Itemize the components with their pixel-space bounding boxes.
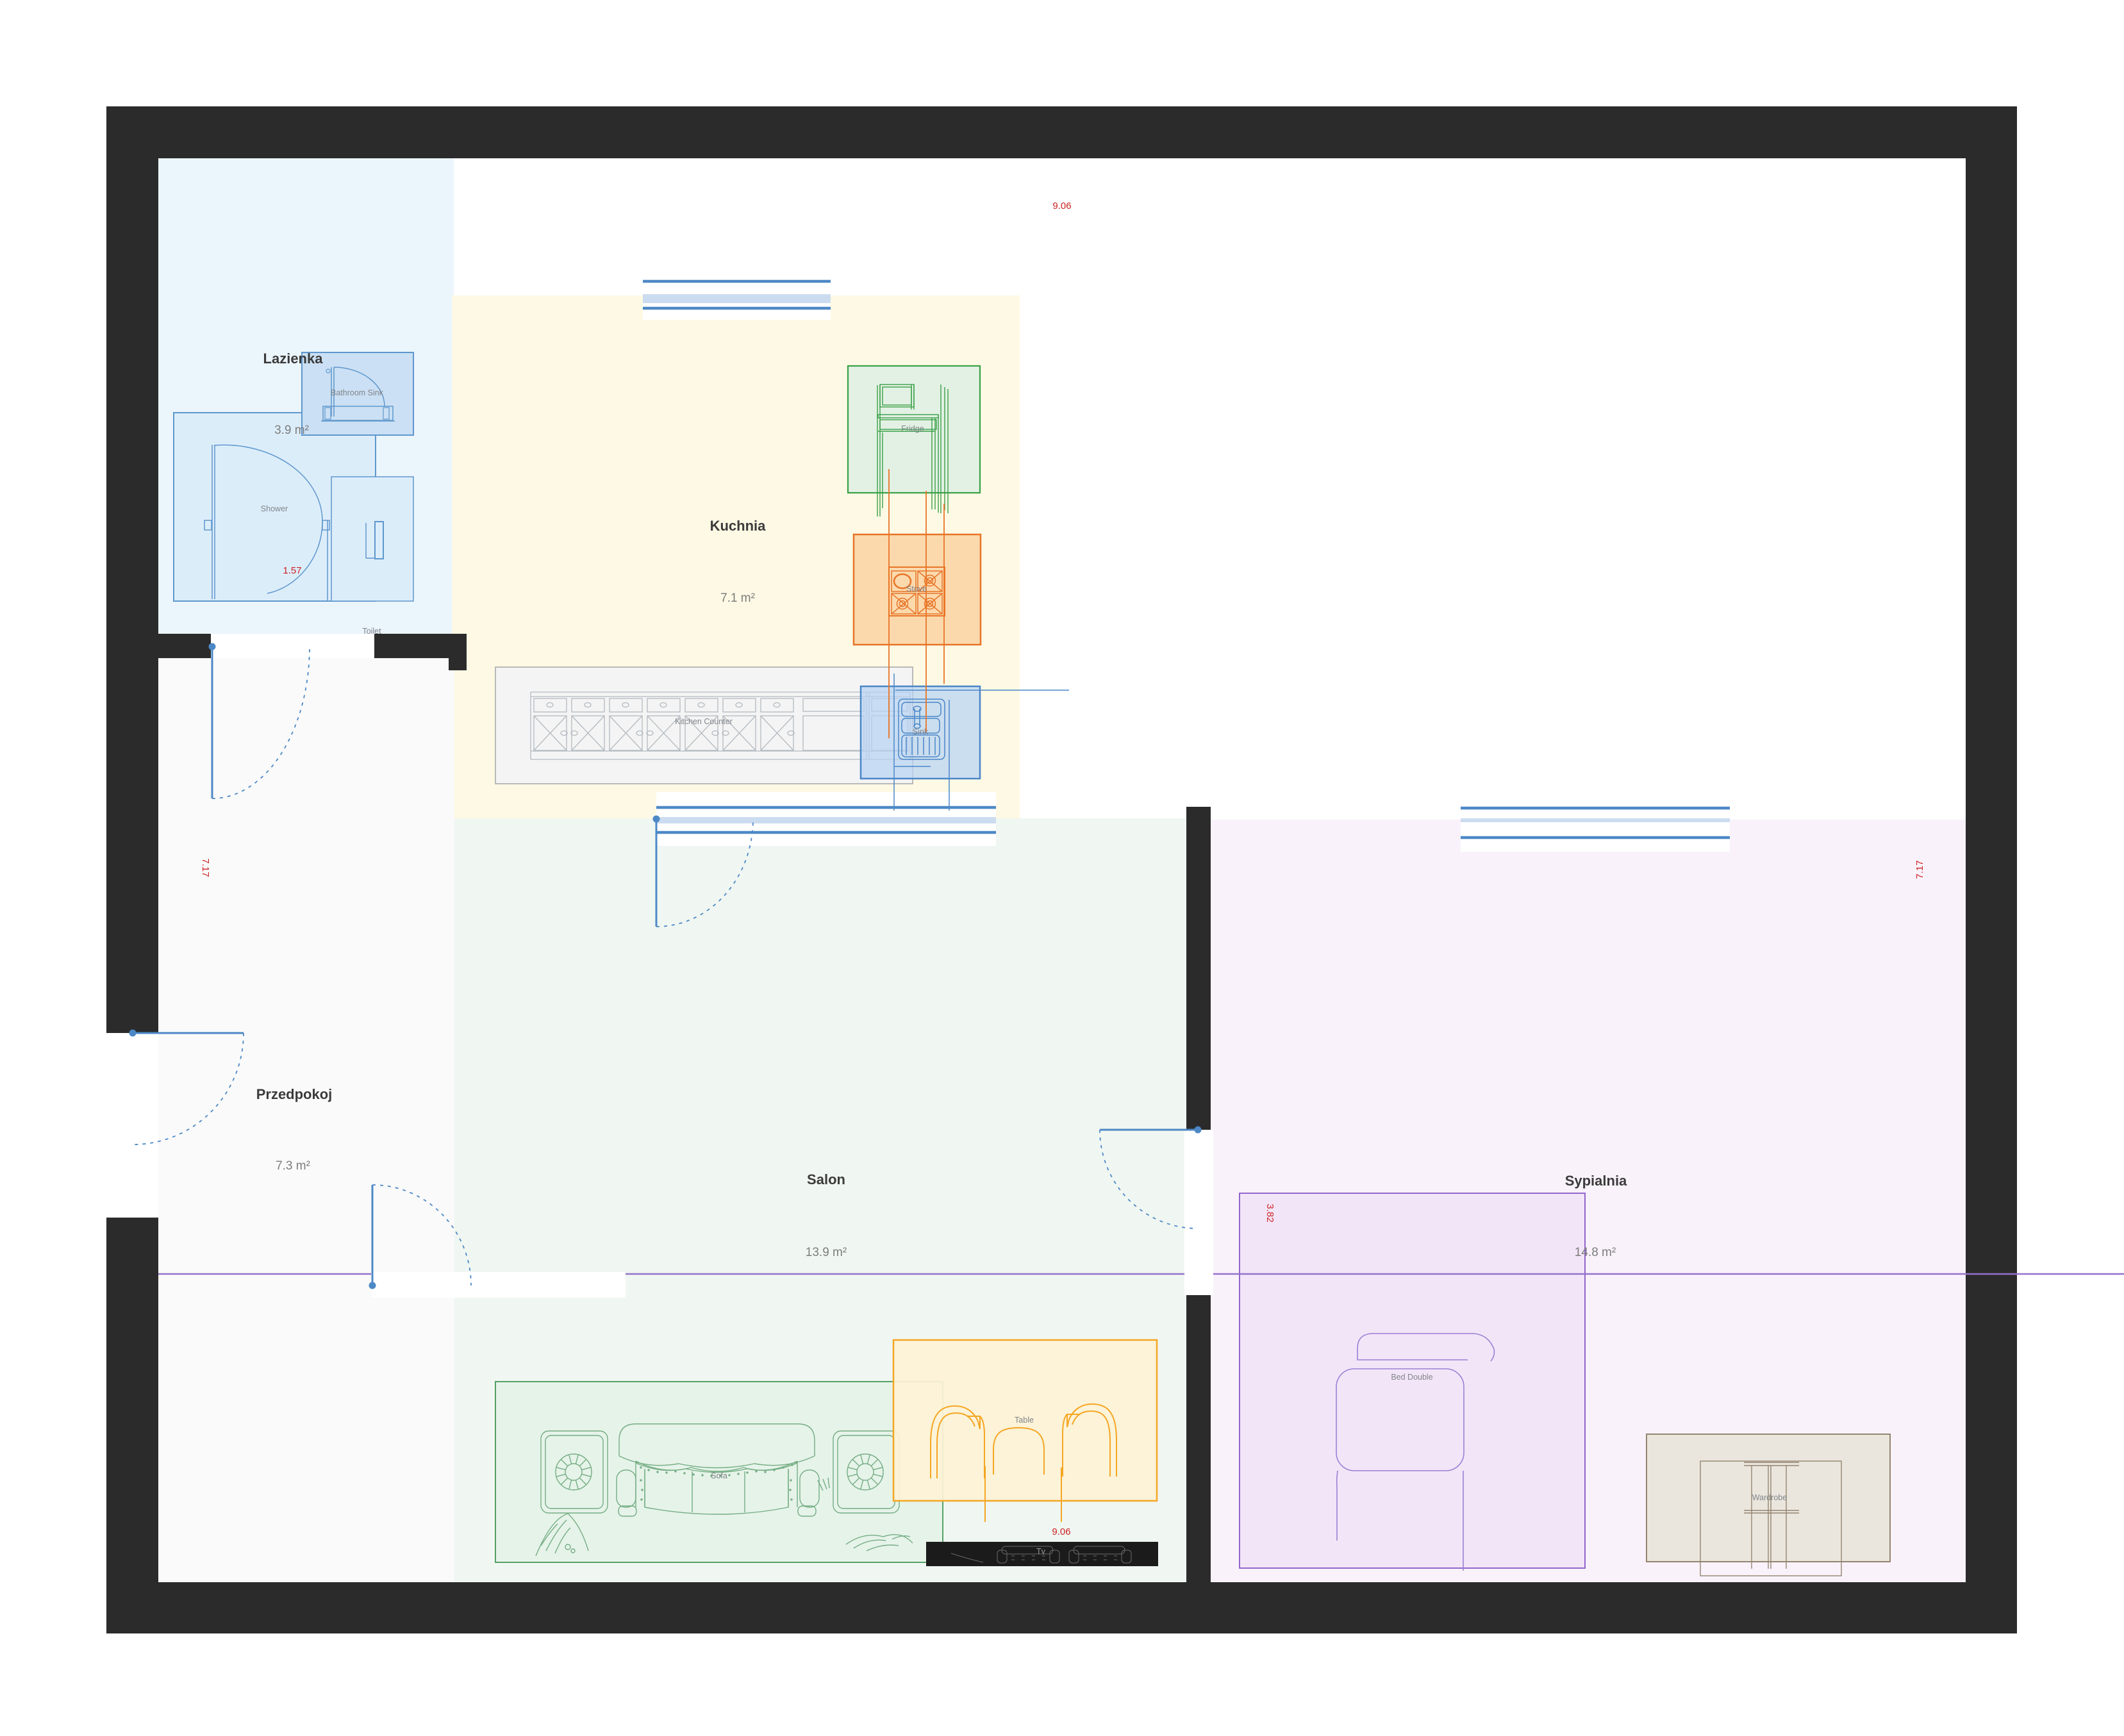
svg-text:Fridge: Fridge xyxy=(901,424,924,433)
svg-text:1.57: 1.57 xyxy=(283,565,301,576)
svg-text:Przedpokoj: Przedpokoj xyxy=(256,1086,333,1102)
svg-text:Shower: Shower xyxy=(261,504,288,513)
svg-text:Table: Table xyxy=(1015,1416,1034,1425)
svg-text:Kitchen Counter: Kitchen Counter xyxy=(675,717,733,726)
svg-text:7.1 m²: 7.1 m² xyxy=(720,591,755,605)
svg-text:Sofa: Sofa xyxy=(711,1471,727,1480)
svg-text:Sink: Sink xyxy=(913,727,929,736)
svg-text:Salon: Salon xyxy=(807,1171,845,1187)
svg-text:3.82: 3.82 xyxy=(1265,1203,1275,1222)
svg-text:9.06: 9.06 xyxy=(1052,201,1071,211)
svg-text:Bathroom Sink: Bathroom Sink xyxy=(331,388,384,397)
svg-text:3.9 m²: 3.9 m² xyxy=(274,424,309,437)
svg-text:9.06: 9.06 xyxy=(1052,1526,1070,1537)
svg-text:Toilet: Toilet xyxy=(362,627,381,636)
svg-text:Sypialnia: Sypialnia xyxy=(1565,1173,1627,1189)
svg-text:Stove: Stove xyxy=(906,584,927,593)
svg-text:Wardrobe: Wardrobe xyxy=(1752,1493,1787,1502)
svg-text:7.3 m²: 7.3 m² xyxy=(276,1159,310,1173)
svg-text:Bed Double: Bed Double xyxy=(1391,1373,1432,1382)
svg-text:Tv: Tv xyxy=(1036,1547,1046,1556)
svg-text:7.17: 7.17 xyxy=(200,858,211,877)
svg-text:Kuchnia: Kuchnia xyxy=(710,518,767,534)
svg-text:14.8 m²: 14.8 m² xyxy=(1575,1246,1616,1259)
svg-text:Lazienka: Lazienka xyxy=(263,351,324,367)
svg-text:13.9 m²: 13.9 m² xyxy=(806,1246,847,1259)
svg-text:7.17: 7.17 xyxy=(1914,860,1925,879)
